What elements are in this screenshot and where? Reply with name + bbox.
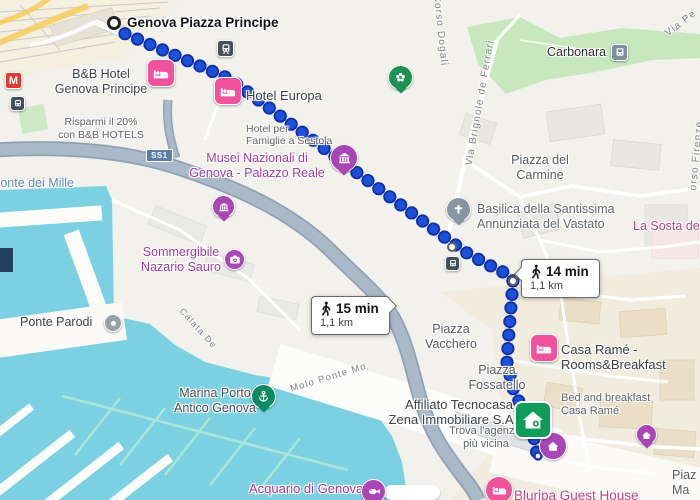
- aquarium-icon[interactable]: [361, 479, 386, 500]
- route-tooltip-alt[interactable]: 15 min 1,1 km: [311, 296, 390, 335]
- poi-label-bluripa[interactable]: Bluripa Guest House I più votati: [514, 469, 639, 500]
- poi-label-ponte-parodi[interactable]: Ponte Parodi: [20, 315, 92, 330]
- museum-icon-musei[interactable]: [330, 144, 358, 172]
- house-icon: [641, 430, 652, 440]
- area-label-piazza-vacchero: Piazza Vacchero: [425, 322, 477, 352]
- route-distance: 1,1 km: [320, 317, 379, 329]
- map-canvas[interactable]: Genova Piazza Principe SS1 B&B Hotel Gen…: [0, 0, 700, 500]
- camera-icon: [229, 254, 241, 265]
- hotel-icon-bluripa[interactable]: [485, 476, 513, 500]
- museum-columns-icon: [337, 152, 352, 164]
- flower-icon: [394, 71, 407, 84]
- poi-label-musei-nazionali[interactable]: Musei Nazionali di Genova - Palazzo Real…: [189, 151, 325, 181]
- bed-icon: [153, 67, 169, 80]
- bed-icon: [536, 342, 552, 355]
- bed-icon: [492, 484, 507, 496]
- house-icon: [546, 440, 560, 452]
- train-icon: [614, 47, 626, 59]
- poi-label-marina[interactable]: Marina Porto Antico Genova: [174, 386, 256, 416]
- route-distance: 1,1 km: [530, 280, 589, 292]
- lodging-pin-icon[interactable]: [636, 424, 657, 445]
- route-tooltip-selected[interactable]: 14 min 1,1 km: [521, 259, 600, 298]
- fish-icon: [367, 486, 381, 497]
- hotel-icon-bnb[interactable]: [147, 59, 175, 87]
- area-label-piazza-edge: Piaz Ma: [672, 468, 696, 498]
- train-icon: [13, 99, 23, 109]
- poi-label-carbonara[interactable]: Carbonara: [547, 45, 606, 60]
- bus-stop-icon[interactable]: [445, 256, 460, 271]
- label-chip: [384, 485, 440, 500]
- poi-label-acquario[interactable]: Acquario di Genova: [249, 481, 363, 496]
- walking-person-icon: [320, 301, 332, 316]
- tram-stop-icon[interactable]: [10, 96, 25, 111]
- museum-columns-icon: [218, 202, 230, 212]
- area-label-piazza-del-carmine: Piazza del Carmine: [511, 153, 569, 183]
- cross-icon: [452, 204, 465, 215]
- train-icon: [220, 43, 232, 55]
- poi-dot-ponte-parodi[interactable]: [104, 314, 122, 332]
- route-origin-marker[interactable]: [107, 16, 121, 30]
- poi-label-casa-rame[interactable]: Casa Ramé - Rooms&Breakfast Bed and brea…: [561, 323, 666, 437]
- attraction-camera-icon[interactable]: [224, 249, 245, 270]
- funicular-station-icon[interactable]: [611, 44, 628, 61]
- house-search-icon: [521, 409, 545, 431]
- park-flower-icon[interactable]: [388, 65, 413, 90]
- walking-person-icon: [530, 264, 542, 279]
- bed-icon: [220, 85, 236, 98]
- hotel-icon-europa[interactable]: [214, 77, 242, 105]
- metro-m-icon[interactable]: M: [5, 72, 22, 89]
- poi-label-bnb-hotel[interactable]: B&B Hotel Genova Principe Risparmi il 20…: [55, 48, 147, 160]
- water-label-ponte-dei-mille: Ponte dei Mille: [0, 176, 74, 191]
- origin-station-label[interactable]: Genova Piazza Principe: [127, 15, 279, 31]
- tecnocasa-house-icon[interactable]: [514, 401, 552, 439]
- route-duration: 14 min: [546, 264, 589, 279]
- route-duration: 15 min: [336, 301, 379, 316]
- dot-glyph: [111, 321, 116, 326]
- poi-label-basilica[interactable]: Basilica della Santissima Annunziata del…: [477, 202, 615, 232]
- hotel-icon-casa-rame[interactable]: [530, 334, 558, 362]
- road-badge-ss1: SS1: [146, 149, 173, 162]
- poi-label-la-sosta[interactable]: La Sosta de: [633, 219, 700, 234]
- poi-label-tecnocasa[interactable]: Affiliato Tecnocasa Zena Immobiliare S.A…: [389, 397, 530, 428]
- poi-sublabel-tecnocasa: Trova l'agenzia più vicina: [449, 425, 523, 451]
- bus-icon: [448, 259, 458, 269]
- marina-anchor-icon[interactable]: [251, 384, 276, 409]
- anchor-icon: [257, 390, 270, 403]
- area-label-piazza-fossatello: Piazza Fossatello: [469, 363, 526, 393]
- train-station-icon[interactable]: [217, 40, 234, 57]
- museum-pin-icon[interactable]: [212, 195, 235, 218]
- church-cross-icon[interactable]: [446, 197, 471, 222]
- poi-label-sommergibile[interactable]: Sommergibile Nazario Sauro: [141, 245, 221, 275]
